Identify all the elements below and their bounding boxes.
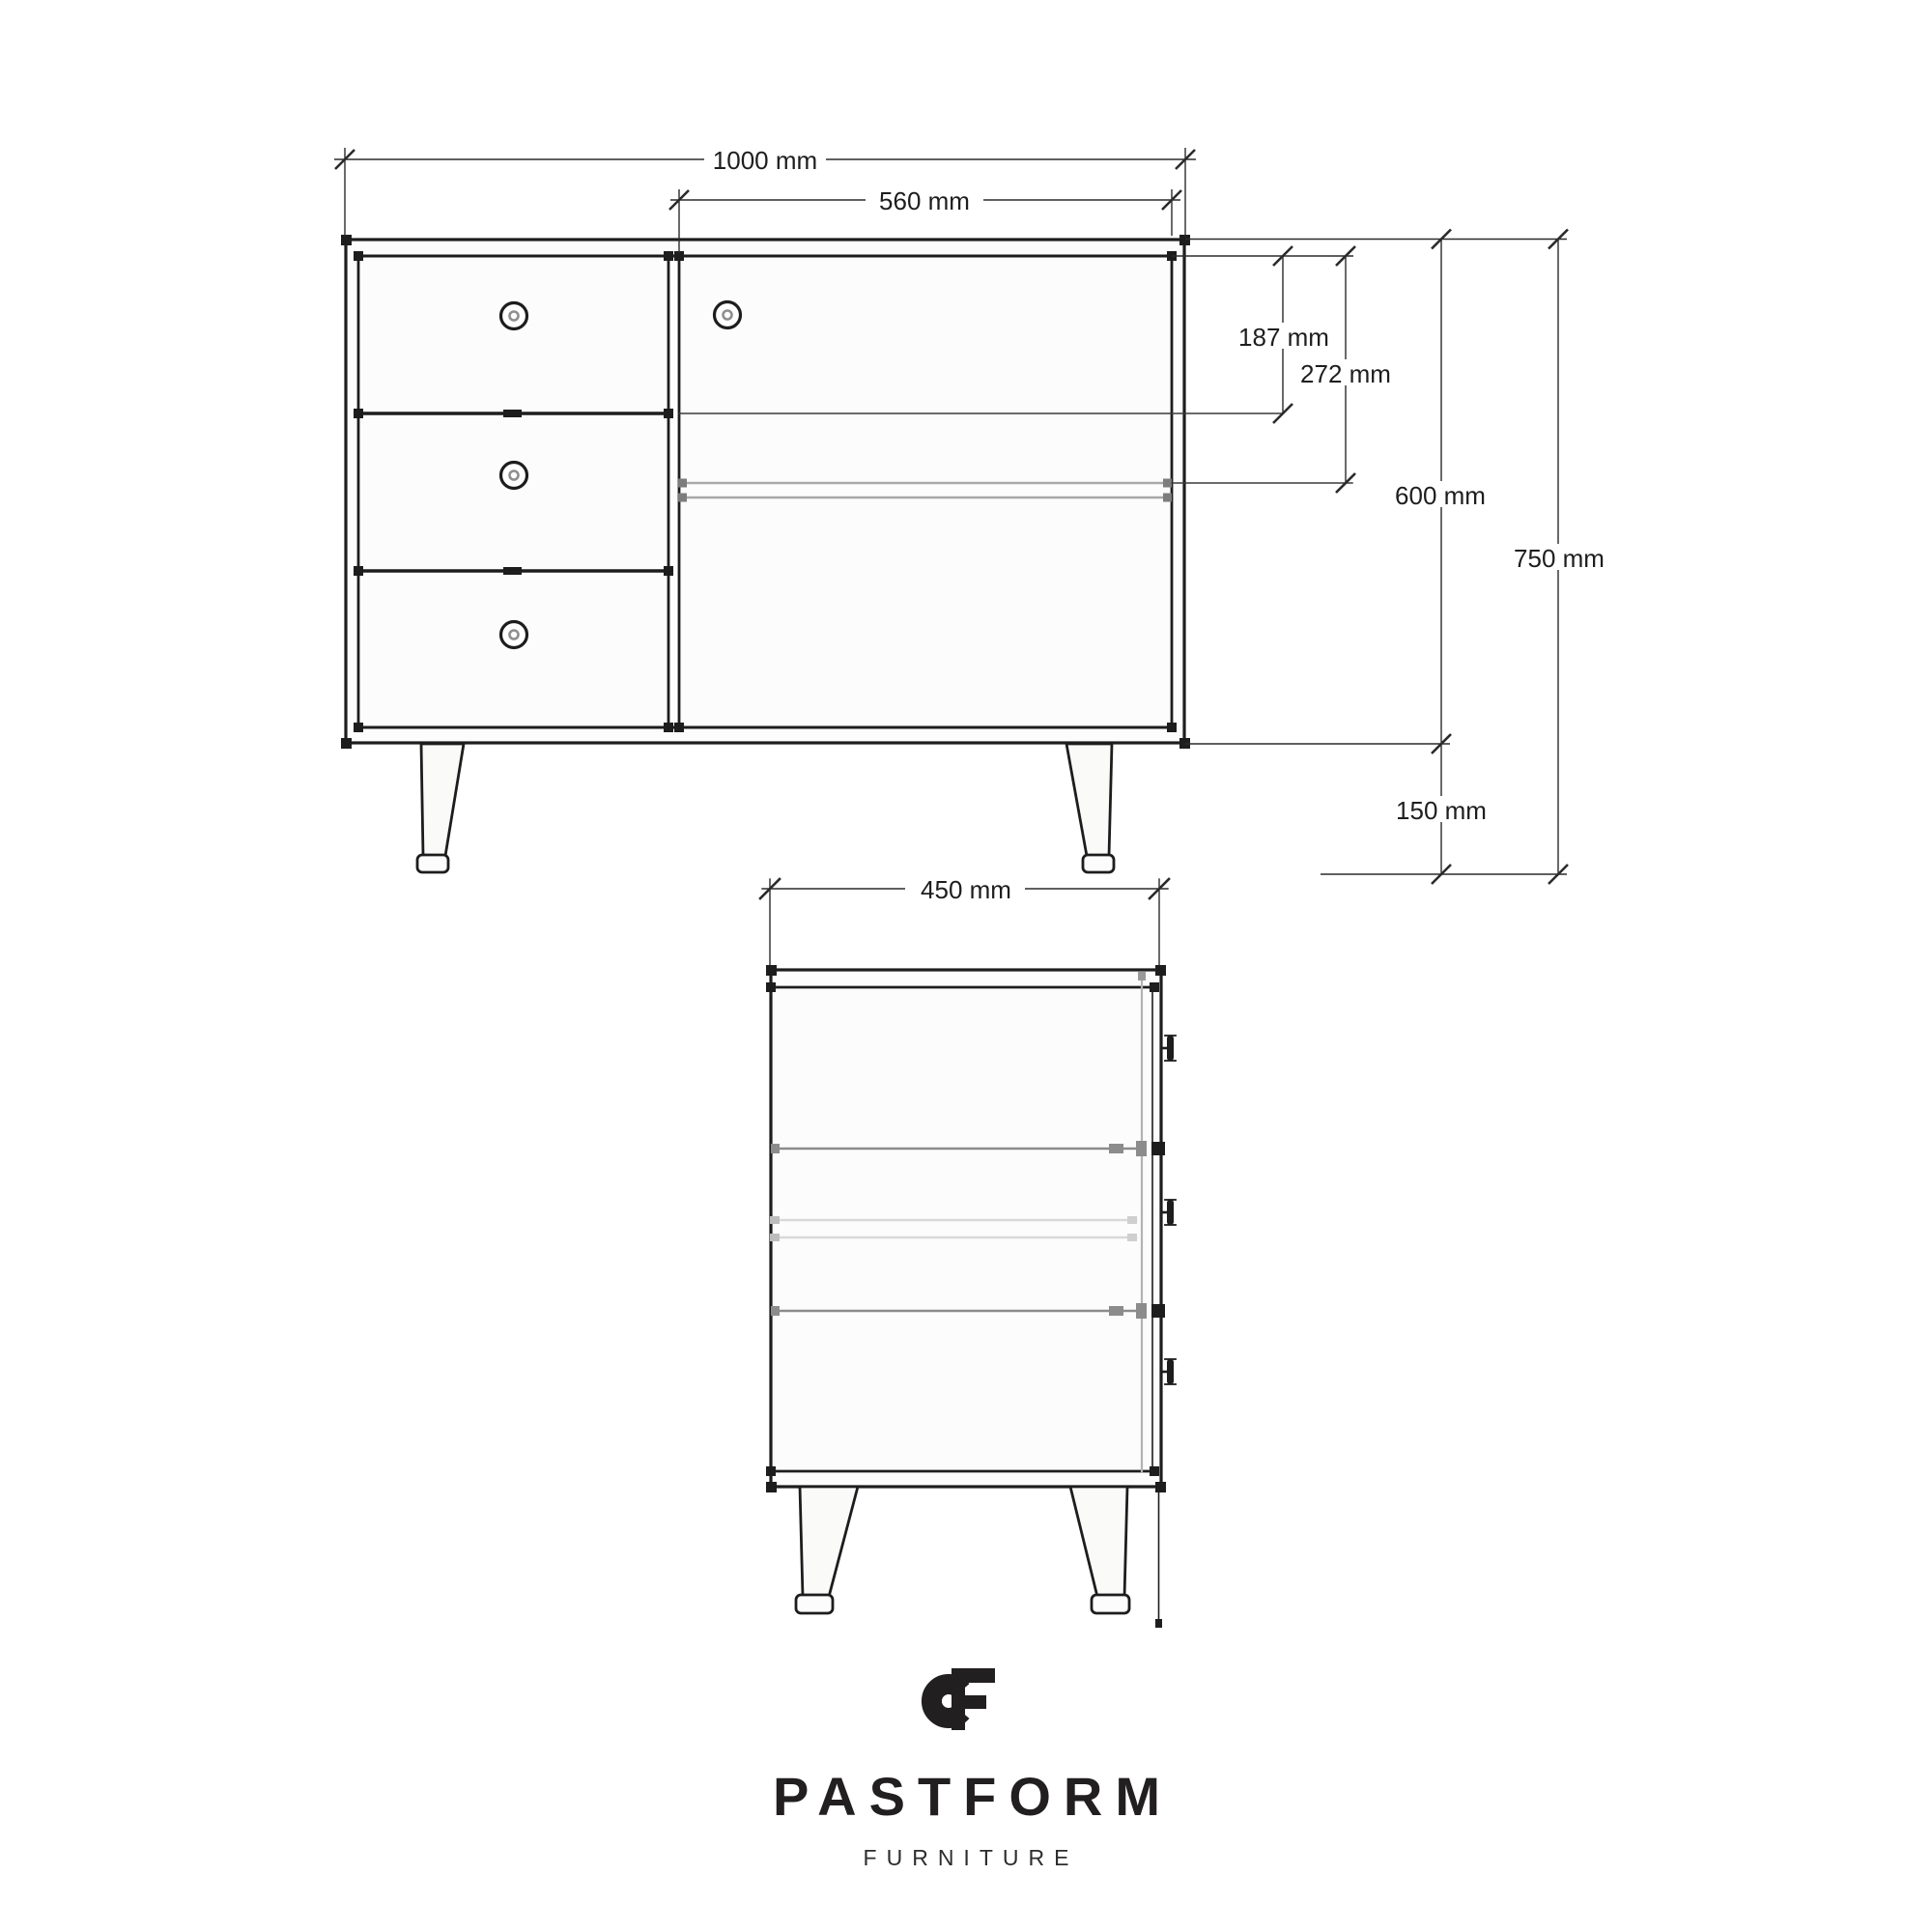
brand-logo: PASTFORM FURNITURE [773, 1668, 1173, 1870]
dim-shelf-position-label: 272 mm [1300, 359, 1391, 388]
dim-overall-width: 1000 mm [334, 146, 1196, 237]
dim-drawer-height-label: 187 mm [1238, 323, 1329, 352]
dim-depth-label: 450 mm [921, 875, 1011, 904]
dim-depth: 450 mm [760, 875, 1169, 967]
brand-monogram-icon [931, 1668, 995, 1730]
dim-leg-height: 150 mm [1382, 744, 1500, 884]
drawer-knob-3 [501, 622, 527, 648]
front-left-leg [421, 744, 464, 856]
side-legs [796, 1487, 1129, 1613]
drawer-knob-1 [501, 303, 527, 329]
front-legs [417, 744, 1114, 872]
brand-name: PASTFORM [773, 1766, 1173, 1827]
side-front-leg [800, 1487, 858, 1597]
dim-overall-width-label: 1000 mm [713, 146, 817, 175]
side-front-leg-foot [796, 1595, 833, 1613]
front-right-leg [1066, 744, 1112, 856]
side-back-leg [1070, 1487, 1127, 1597]
side-view: 450 mm [760, 875, 1176, 1628]
right-leader-lines [1172, 230, 1568, 267]
side-front-edge-cap [1138, 972, 1146, 980]
dim-carcass-height: 600 mm [1185, 240, 1499, 754]
dim-carcass-height-label: 600 mm [1395, 481, 1486, 510]
side-knob-3 [1161, 1359, 1176, 1384]
front-right-leg-foot [1083, 855, 1114, 872]
side-carcass-outline [771, 970, 1161, 1487]
dim-shelf-position: 272 mm [1298, 256, 1393, 493]
dim-drawer-height: 187 mm [1237, 256, 1330, 423]
dim-leg-height-label: 150 mm [1396, 796, 1487, 825]
brand-tagline: FURNITURE [864, 1845, 1079, 1870]
technical-drawing-canvas: 1000 mm 560 mm 187 mm [0, 0, 1932, 1932]
front-left-leg-foot [417, 855, 448, 872]
front-carcass-outline [346, 240, 1184, 743]
side-back-leg-foot [1092, 1595, 1129, 1613]
side-back-edge-foot-mark [1155, 1619, 1162, 1628]
dim-door-width-label: 560 mm [879, 186, 970, 215]
drawing-page: 1000 mm 560 mm 187 mm [0, 0, 1932, 1932]
door-knob [715, 302, 741, 328]
dim-overall-height-label: 750 mm [1514, 544, 1605, 573]
drawer-knob-2 [501, 463, 527, 489]
side-knob-2 [1161, 1200, 1176, 1225]
dim-overall-height: 750 mm [1500, 240, 1618, 885]
front-view [341, 235, 1352, 872]
side-knob-1 [1161, 1036, 1176, 1061]
